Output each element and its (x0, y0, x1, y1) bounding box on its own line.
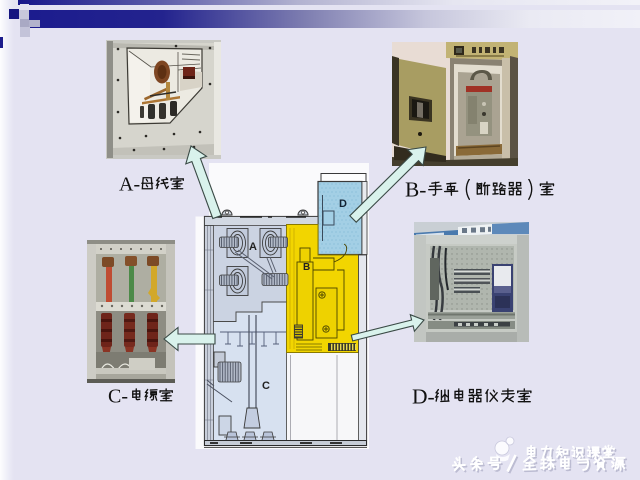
svg-text:B: B (303, 262, 310, 273)
svg-text:A: A (249, 241, 257, 253)
svg-text:B-: B- (405, 179, 426, 201)
svg-text:C: C (262, 380, 270, 392)
svg-text:C-: C- (108, 386, 128, 407)
svg-text:D-: D- (412, 386, 435, 408)
svg-text:A-: A- (119, 174, 140, 195)
